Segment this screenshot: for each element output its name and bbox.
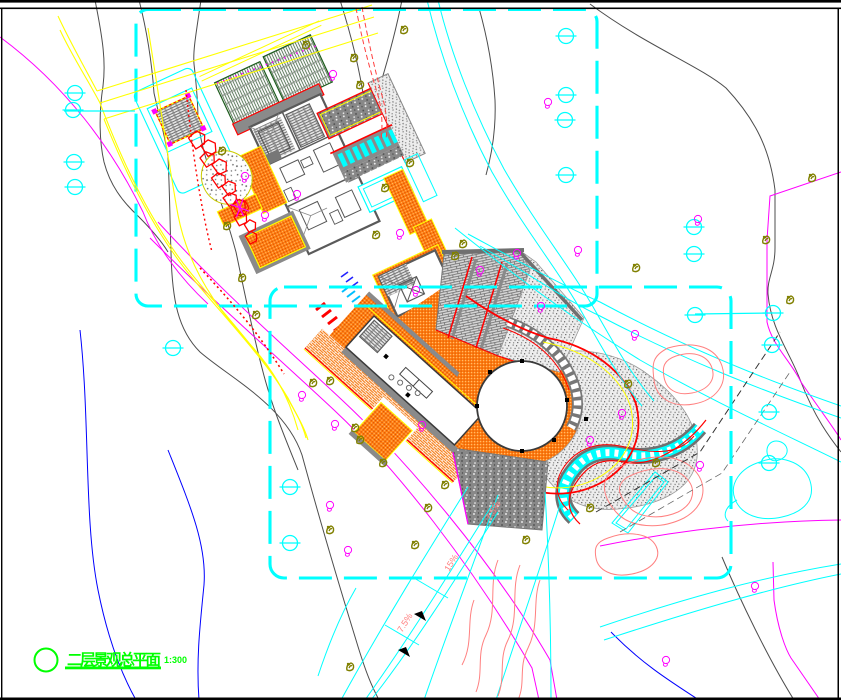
svg-text:二层景观总平面: 二层景观总平面 xyxy=(67,650,161,669)
svg-text:1:300: 1:300 xyxy=(164,655,187,665)
